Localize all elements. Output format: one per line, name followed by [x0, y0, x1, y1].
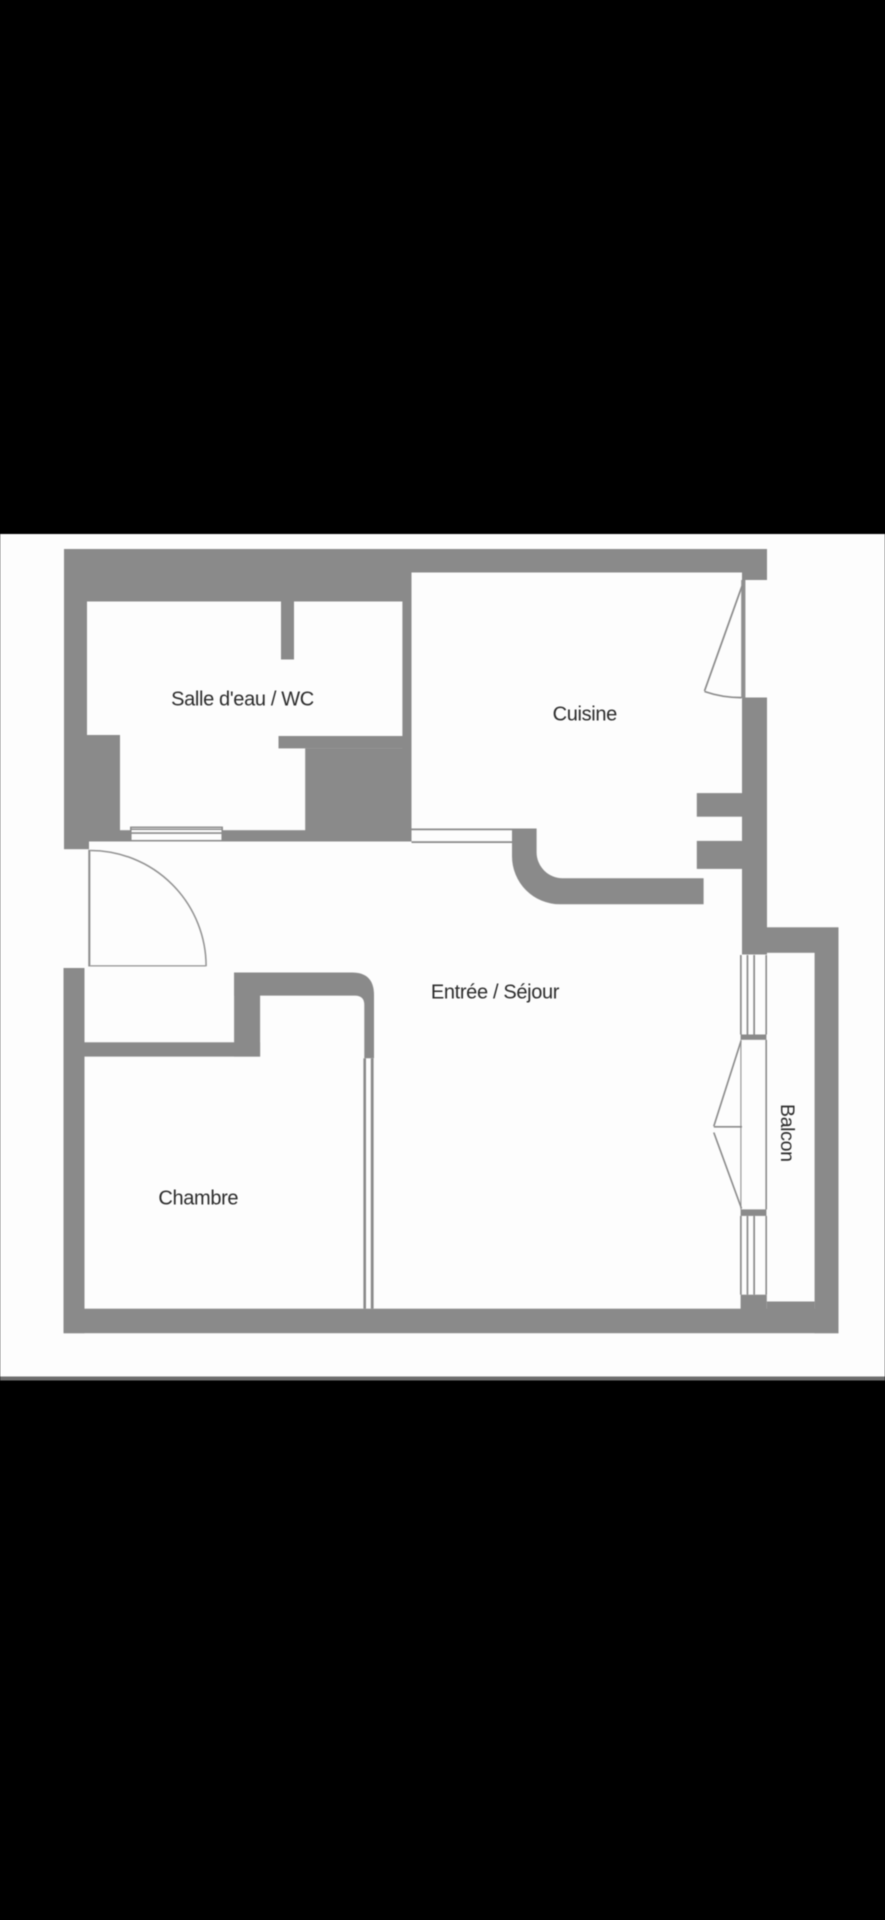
- svg-text:Cuisine: Cuisine: [553, 703, 617, 725]
- svg-text:Entrée / Séjour: Entrée / Séjour: [431, 982, 560, 1004]
- svg-text:Salle d'eau / WC: Salle d'eau / WC: [171, 688, 314, 710]
- svg-text:Balcon: Balcon: [776, 1104, 798, 1162]
- svg-text:Chambre: Chambre: [158, 1187, 238, 1209]
